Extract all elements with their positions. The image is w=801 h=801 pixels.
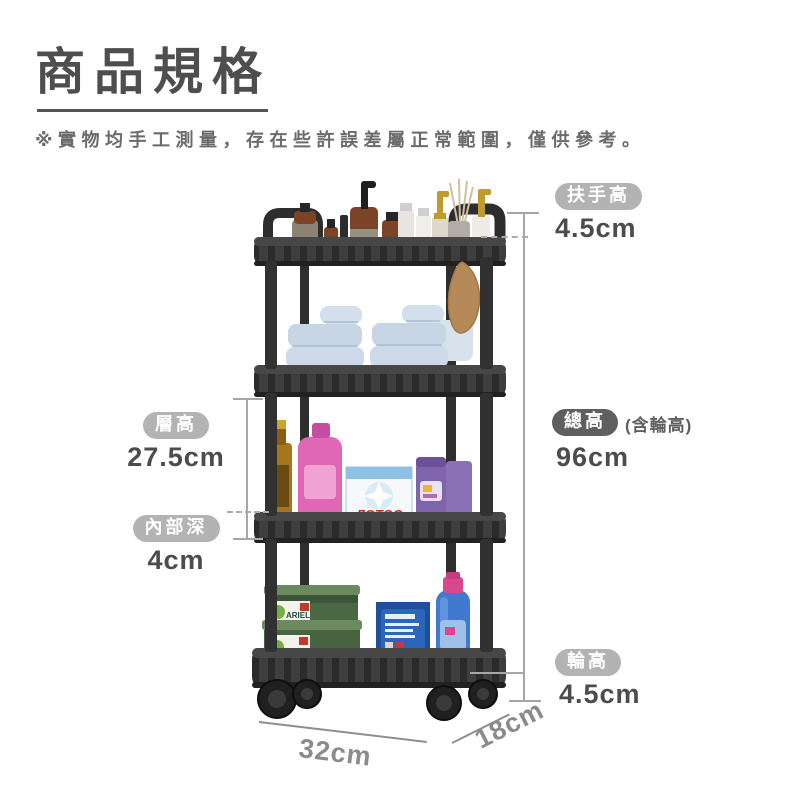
title-underline [37,109,268,112]
bottom-width-value: 32cm [297,733,373,773]
tier2-towels [286,305,473,368]
wheel-height-annotation: 輪高 4.5cm [555,649,641,710]
handle-height-label: 扶手高 [555,183,642,210]
cart-basket-2 [254,365,506,397]
svg-text:ARIEL: ARIEL [286,611,310,620]
tier-height-annotation: 層高 27.5cm [112,412,240,473]
total-height-top-tick [507,212,539,214]
total-height-label: 總高 [552,409,618,436]
product-image: ЛОТОС ARIEL [240,165,540,725]
tier-height-line [246,399,248,539]
tier-height-top-tick [233,398,263,400]
cart-basket-4 [252,648,506,688]
total-height-suffix: (含輪高) [625,411,692,436]
tier-height-value: 27.5cm [112,442,240,473]
total-height-annotation: 總高(含輪高) 96cm [552,409,692,473]
total-height-value: 96cm [556,442,692,473]
inner-depth-label: 內部深 [133,515,220,542]
cart-basket-1 [254,237,506,266]
wheel-height-label: 輪高 [555,649,621,676]
inner-depth-annotation: 內部深 4cm [118,515,234,576]
inner-depth-value: 4cm [118,545,234,576]
wheel-height-value: 4.5cm [559,679,641,710]
disclaimer-text: ※實物均手工測量，存在些許誤差屬正常範圍，僅供參考。 [35,126,646,152]
page-title: 商品規格 [35,32,271,104]
handle-height-annotation: 扶手高 4.5cm [555,183,642,244]
inner-depth-dash [227,511,269,513]
handle-height-dash [481,236,528,238]
total-height-line [523,213,525,701]
tier-height-label: 層高 [143,412,209,439]
handle-height-value: 4.5cm [555,213,642,244]
tier-height-bottom-tick [233,538,263,540]
wheel-height-tick [470,672,524,674]
cart-basket-3 [254,512,506,543]
